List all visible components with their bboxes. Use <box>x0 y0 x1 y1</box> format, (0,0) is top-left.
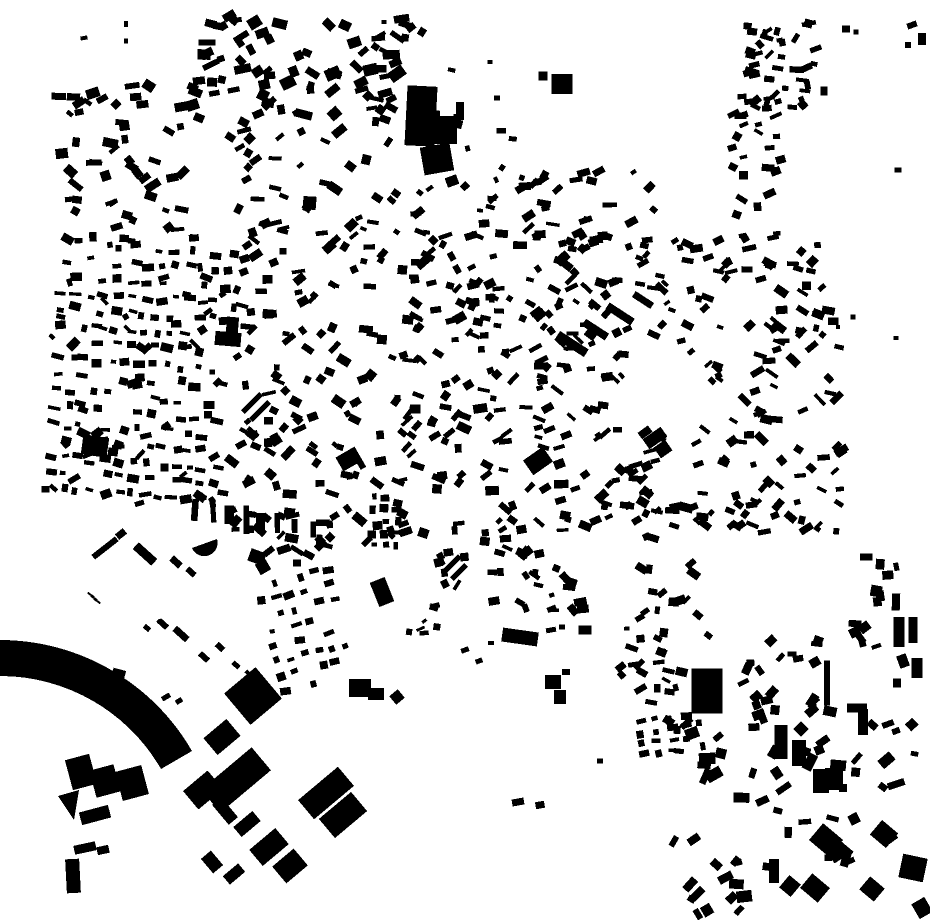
landmark-buildings <box>65 20 930 919</box>
city-figure-ground-map <box>0 0 930 924</box>
building-clusters <box>41 9 918 920</box>
building-footprints-svg <box>0 0 930 924</box>
